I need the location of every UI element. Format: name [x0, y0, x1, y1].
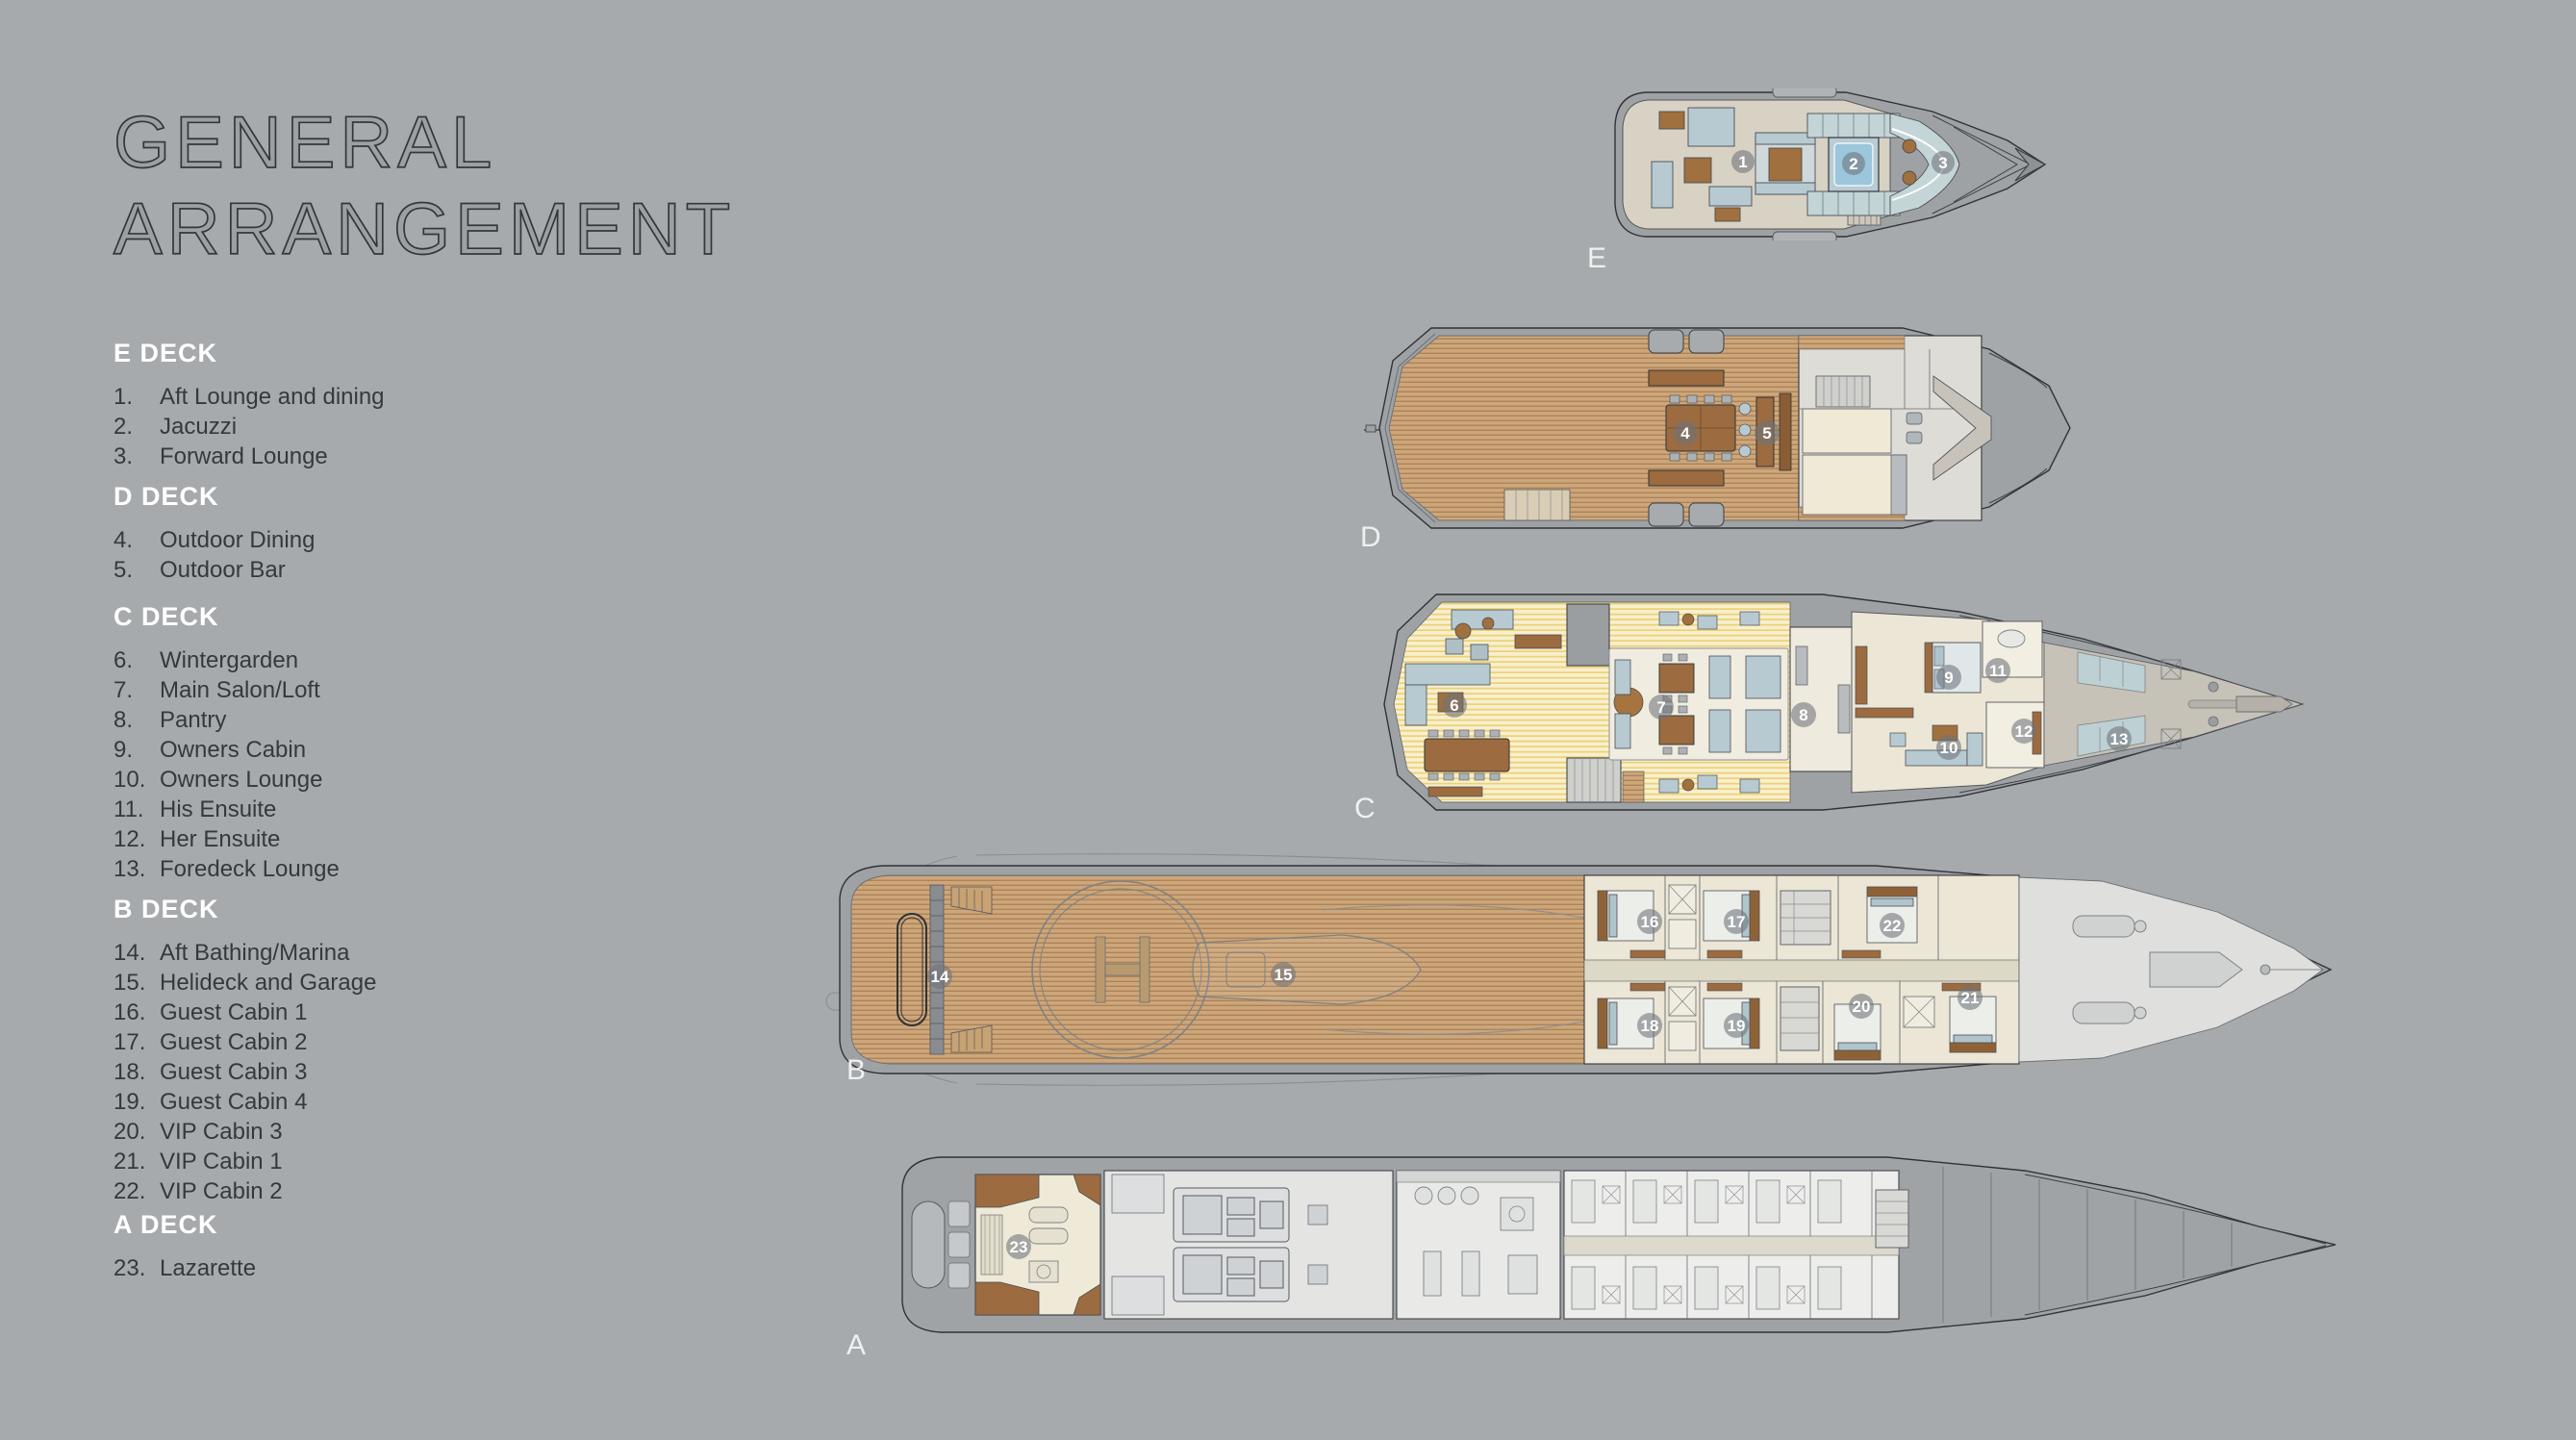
- deck-marker-6: 6: [1442, 693, 1467, 718]
- svg-text:22: 22: [1883, 917, 1902, 935]
- deck-plan-b: 14 15 16 17 18 19 20 21 22: [822, 852, 2337, 1087]
- legend-item: 19.Guest Cabin 4: [114, 1087, 479, 1117]
- legend-item: 14.Aft Bathing/Marina: [114, 938, 479, 968]
- a-lazarette: [975, 1175, 1100, 1315]
- svg-text:12: 12: [2015, 722, 2033, 741]
- deck-plan-d-svg: 4 5: [1364, 320, 2076, 536]
- legend-item-label: Guest Cabin 4: [160, 1087, 307, 1117]
- svg-text:14: 14: [931, 968, 949, 986]
- legend-item-label: Guest Cabin 2: [160, 1027, 307, 1057]
- legend-item-number: 11.: [114, 795, 160, 824]
- legend-heading: B DECK: [114, 895, 479, 924]
- deck-plan-b-svg: 14 15 16 17 18 19 20 21 22: [822, 852, 2337, 1087]
- legend-item-number: 6.: [114, 645, 160, 675]
- deck-marker-3: 3: [1932, 151, 1955, 174]
- legend-item-number: 1.: [114, 382, 160, 412]
- a-engine-room: [1104, 1171, 1393, 1319]
- svg-text:9: 9: [1944, 669, 1953, 687]
- legend-item-label: VIP Cabin 3: [160, 1117, 283, 1147]
- legend-item: 22.VIP Cabin 2: [114, 1176, 479, 1206]
- legend-section-d-deck: D DECK 4.Outdoor Dining 5.Outdoor Bar: [114, 482, 479, 585]
- deck-marker-23: 23: [1006, 1234, 1031, 1259]
- svg-text:6: 6: [1450, 696, 1458, 715]
- legend-item-number: 16.: [114, 998, 160, 1027]
- legend-item: 9.Owners Cabin: [114, 735, 479, 765]
- deck-marker-1: 1: [1731, 150, 1755, 173]
- deck-marker-20: 20: [1849, 994, 1874, 1019]
- deck-marker-4: 4: [1673, 420, 1698, 445]
- legend-item-number: 17.: [114, 1027, 160, 1057]
- legend-item-number: 18.: [114, 1057, 160, 1087]
- deck-label-a: A: [846, 1329, 867, 1362]
- c-foredeck-lounge: [2044, 643, 2302, 766]
- deck-marker-15: 15: [1271, 962, 1296, 987]
- legend-heading: D DECK: [114, 482, 479, 512]
- legend-item-number: 3.: [114, 442, 160, 471]
- legend-item: 3.Forward Lounge: [114, 442, 479, 471]
- deck-label-b: B: [846, 1054, 867, 1087]
- a-engine-block: [1174, 1188, 1289, 1242]
- deck-marker-8: 8: [1791, 702, 1816, 727]
- deck-plan-d: 4 5: [1364, 320, 2076, 536]
- legend-item: 23.Lazarette: [114, 1253, 479, 1283]
- legend-heading: C DECK: [114, 602, 479, 632]
- legend-item-label: Guest Cabin 3: [160, 1057, 307, 1087]
- legend-item: 5.Outdoor Bar: [114, 555, 479, 585]
- deck-marker-14: 14: [927, 964, 952, 989]
- svg-text:16: 16: [1641, 913, 1659, 931]
- legend-item-number: 8.: [114, 705, 160, 735]
- legend-item-label: His Ensuite: [160, 795, 276, 824]
- legend-item-number: 4.: [114, 525, 160, 555]
- legend-item-number: 12.: [114, 824, 160, 854]
- legend-item-number: 10.: [114, 765, 160, 795]
- legend-item: 17.Guest Cabin 2: [114, 1027, 479, 1057]
- legend-heading: A DECK: [114, 1210, 479, 1240]
- legend-item-label: Owners Lounge: [160, 765, 322, 795]
- deck-marker-10: 10: [1936, 735, 1961, 760]
- deck-marker-18: 18: [1637, 1013, 1662, 1038]
- svg-text:23: 23: [1010, 1238, 1028, 1256]
- a-crew-mess: [1397, 1171, 1560, 1319]
- deck-plan-c-svg: 6 7 8 9 10 11 12 13: [1371, 589, 2309, 816]
- a-crew-cabins: [1564, 1171, 1908, 1319]
- legend-item-number: 5.: [114, 555, 160, 585]
- e-mid-lounge: [1755, 133, 1815, 194]
- deck-label-d: D: [1360, 521, 1382, 554]
- deck-marker-21: 21: [1957, 985, 1983, 1010]
- legend-item: 7.Main Salon/Loft: [114, 675, 479, 705]
- legend-item: 11.His Ensuite: [114, 795, 479, 824]
- page: GENERAL ARRANGEMENT E DECK 1.Aft Lounge …: [0, 0, 2576, 1440]
- svg-text:11: 11: [1989, 662, 2007, 680]
- legend-item-number: 13.: [114, 854, 160, 884]
- legend-item-number: 23.: [114, 1253, 160, 1283]
- legend-item-label: Outdoor Dining: [160, 525, 315, 555]
- deck-marker-12: 12: [2011, 719, 2036, 744]
- svg-text:18: 18: [1641, 1017, 1659, 1035]
- b-crew-tender-bay: [2019, 877, 2323, 1062]
- legend-item-number: 20.: [114, 1117, 160, 1147]
- page-title-line2: ARRANGEMENT: [114, 187, 735, 273]
- legend-item: 20.VIP Cabin 3: [114, 1117, 479, 1147]
- svg-text:21: 21: [1961, 989, 1980, 1007]
- legend-item-number: 21.: [114, 1147, 160, 1176]
- deck-marker-9: 9: [1936, 665, 1961, 690]
- legend-item-label: Lazarette: [160, 1253, 256, 1283]
- legend-section-b-deck: B DECK 14.Aft Bathing/Marina 15.Helideck…: [114, 895, 479, 1206]
- legend-item-label: Forward Lounge: [160, 442, 328, 471]
- legend-section-a-deck: A DECK 23.Lazarette: [114, 1210, 479, 1283]
- legend-item: 8.Pantry: [114, 705, 479, 735]
- svg-text:8: 8: [1799, 706, 1807, 724]
- deck-marker-7: 7: [1649, 695, 1674, 720]
- deck-plan-c: 6 7 8 9 10 11 12 13: [1371, 589, 2309, 816]
- d-interior: [1799, 336, 1991, 520]
- legend-item: 18.Guest Cabin 3: [114, 1057, 479, 1087]
- a-aft-platform: [912, 1201, 970, 1288]
- deck-plan-e: 1 2 3: [1602, 88, 2049, 240]
- deck-label-c: C: [1354, 793, 1376, 825]
- svg-text:19: 19: [1728, 1017, 1746, 1035]
- legend-section-c-deck: C DECK 6.Wintergarden 7.Main Salon/Loft …: [114, 602, 479, 884]
- deck-plan-a-svg: 23: [885, 1148, 2342, 1342]
- legend-item-label: Foredeck Lounge: [160, 854, 340, 884]
- legend-item-label: Aft Bathing/Marina: [160, 938, 349, 968]
- legend-item-label: Main Salon/Loft: [160, 675, 320, 705]
- legend-item: 1.Aft Lounge and dining: [114, 382, 479, 412]
- legend-item-number: 9.: [114, 735, 160, 765]
- legend-item: 10.Owners Lounge: [114, 765, 479, 795]
- svg-text:20: 20: [1853, 998, 1871, 1016]
- legend-item: 13.Foredeck Lounge: [114, 854, 479, 884]
- svg-text:7: 7: [1656, 698, 1665, 717]
- page-title: GENERAL ARRANGEMENT: [114, 100, 735, 273]
- deck-marker-22: 22: [1880, 913, 1905, 938]
- legend-item: 12.Her Ensuite: [114, 824, 479, 854]
- legend-item-label: Guest Cabin 1: [160, 998, 307, 1027]
- svg-text:1: 1: [1738, 153, 1747, 171]
- deck-marker-17: 17: [1724, 909, 1749, 934]
- svg-text:4: 4: [1680, 424, 1690, 442]
- legend-item: 15.Helideck and Garage: [114, 968, 479, 998]
- page-title-line1: GENERAL: [114, 100, 735, 187]
- svg-text:10: 10: [1940, 739, 1958, 757]
- legend-item-number: 15.: [114, 968, 160, 998]
- legend-item-label: Owners Cabin: [160, 735, 306, 765]
- deck-plan-e-svg: 1 2 3: [1602, 88, 2049, 240]
- svg-text:3: 3: [1938, 154, 1947, 172]
- c-pantry: [1790, 627, 1852, 771]
- legend-item-label: VIP Cabin 1: [160, 1147, 283, 1176]
- deck-marker-16: 16: [1637, 909, 1662, 934]
- legend-item: 2.Jacuzzi: [114, 412, 479, 442]
- deck-marker-11: 11: [1985, 658, 2010, 683]
- svg-text:5: 5: [1762, 424, 1771, 442]
- legend-item: 4.Outdoor Dining: [114, 525, 479, 555]
- c-owners-suite: [1852, 612, 2044, 793]
- legend-item-label: Pantry: [160, 705, 226, 735]
- legend-item: 21.VIP Cabin 1: [114, 1147, 479, 1176]
- deck-marker-13: 13: [2107, 726, 2132, 751]
- legend-item-number: 7.: [114, 675, 160, 705]
- legend-section-e-deck: E DECK 1.Aft Lounge and dining 2.Jacuzzi…: [114, 339, 479, 471]
- legend-item-number: 14.: [114, 938, 160, 968]
- deck-marker-5: 5: [1755, 420, 1780, 445]
- legend-item-number: 19.: [114, 1087, 160, 1117]
- legend-item-label: Wintergarden: [160, 645, 298, 675]
- legend-item-number: 22.: [114, 1176, 160, 1206]
- deck-marker-2: 2: [1842, 152, 1865, 175]
- legend-item-label: VIP Cabin 2: [160, 1176, 283, 1206]
- svg-text:15: 15: [1275, 966, 1293, 984]
- d-teak-deck: [1389, 336, 1799, 520]
- deck-marker-19: 19: [1724, 1013, 1749, 1038]
- svg-text:2: 2: [1849, 155, 1857, 173]
- deck-plan-a: 23: [885, 1148, 2342, 1342]
- legend-heading: E DECK: [114, 339, 479, 368]
- svg-text:17: 17: [1728, 913, 1746, 931]
- legend-item: 6.Wintergarden: [114, 645, 479, 675]
- legend-item-label: Helideck and Garage: [160, 968, 376, 998]
- legend-item-label: Jacuzzi: [160, 412, 237, 442]
- legend-item-number: 2.: [114, 412, 160, 442]
- deck-label-e: E: [1587, 242, 1607, 275]
- svg-text:13: 13: [2110, 730, 2129, 748]
- a-engine-block: [1174, 1248, 1289, 1301]
- legend-item-label: Aft Lounge and dining: [160, 382, 385, 412]
- legend-item: 16.Guest Cabin 1: [114, 998, 479, 1027]
- legend-item-label: Outdoor Bar: [160, 555, 286, 585]
- legend-item-label: Her Ensuite: [160, 824, 280, 854]
